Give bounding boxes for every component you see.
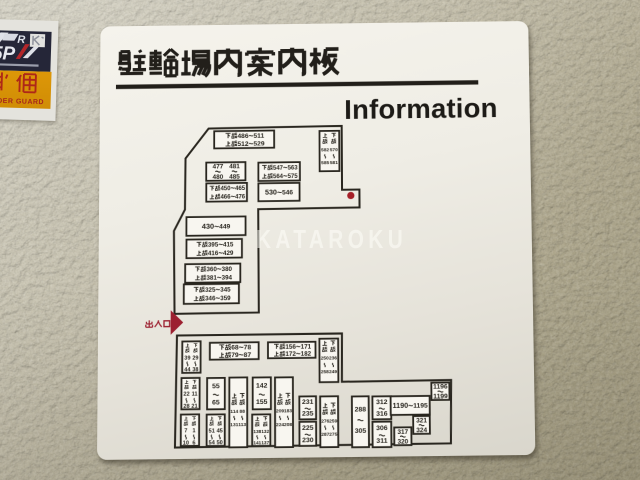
svg-text:51: 51 <box>209 428 215 434</box>
svg-text:288: 288 <box>355 406 367 413</box>
svg-text:231: 231 <box>302 399 314 406</box>
svg-text:582: 582 <box>321 147 329 152</box>
svg-text:316: 316 <box>376 410 388 417</box>
svg-text:312: 312 <box>376 399 388 406</box>
svg-text:249: 249 <box>329 369 338 374</box>
svg-text:45: 45 <box>217 428 223 434</box>
svg-text:259: 259 <box>329 418 338 423</box>
svg-text:22: 22 <box>183 392 189 398</box>
svg-text:208: 208 <box>284 422 293 427</box>
svg-text:10: 10 <box>183 440 189 446</box>
svg-text:1: 1 <box>192 428 195 434</box>
svg-text:183: 183 <box>284 408 293 413</box>
svg-text:50: 50 <box>217 440 223 446</box>
svg-text:142: 142 <box>256 383 268 390</box>
svg-text:1196: 1196 <box>433 384 448 391</box>
svg-text:6: 6 <box>192 440 195 446</box>
svg-text:324: 324 <box>416 427 427 434</box>
svg-text:235: 235 <box>302 410 314 417</box>
svg-text:21: 21 <box>191 404 197 410</box>
svg-text:585: 585 <box>321 160 329 165</box>
svg-text:114: 114 <box>230 409 238 414</box>
svg-text:137: 137 <box>261 440 269 445</box>
svg-text:317: 317 <box>397 429 408 436</box>
svg-text:54: 54 <box>209 440 215 446</box>
svg-text:306: 306 <box>376 425 388 432</box>
svg-text:172~182: 172~182 <box>285 349 311 359</box>
svg-text:480: 480 <box>213 174 224 181</box>
svg-text:5P: 5P <box>0 43 16 65</box>
svg-text:236: 236 <box>329 355 338 360</box>
svg-text:29: 29 <box>192 355 198 361</box>
svg-text:R: R <box>17 33 25 45</box>
svg-text:321: 321 <box>416 417 427 424</box>
svg-text:305: 305 <box>355 428 367 435</box>
svg-text:NDER GUARD: NDER GUARD <box>0 97 44 106</box>
svg-text:1199: 1199 <box>433 393 448 400</box>
svg-text:28: 28 <box>183 404 189 410</box>
svg-text:155: 155 <box>256 399 268 406</box>
svg-text:55: 55 <box>212 383 220 390</box>
svg-text:581: 581 <box>330 160 338 165</box>
svg-text:477: 477 <box>213 164 224 171</box>
svg-text:65: 65 <box>212 399 220 406</box>
svg-text:381~394: 381~394 <box>206 273 232 283</box>
svg-text:311: 311 <box>376 438 388 445</box>
svg-text:39: 39 <box>184 355 190 361</box>
svg-text:320: 320 <box>397 438 408 445</box>
svg-text:485: 485 <box>229 173 240 180</box>
svg-text:416~429: 416~429 <box>208 248 234 257</box>
svg-text:225: 225 <box>302 424 314 431</box>
svg-text:38: 38 <box>192 367 198 373</box>
svg-text:570: 570 <box>330 147 338 152</box>
svg-text:113: 113 <box>238 422 246 427</box>
svg-text:481: 481 <box>229 163 240 170</box>
svg-text:325~345: 325~345 <box>205 285 231 295</box>
svg-text:7: 7 <box>184 428 187 434</box>
svg-text:Information: Information <box>344 93 498 125</box>
svg-text:275: 275 <box>329 432 338 437</box>
svg-text:11: 11 <box>192 392 198 398</box>
svg-text:132: 132 <box>261 429 269 434</box>
svg-text:44: 44 <box>184 367 190 373</box>
svg-text:88: 88 <box>240 408 246 413</box>
svg-text:230: 230 <box>302 437 314 444</box>
svg-text:346~359: 346~359 <box>205 294 231 304</box>
